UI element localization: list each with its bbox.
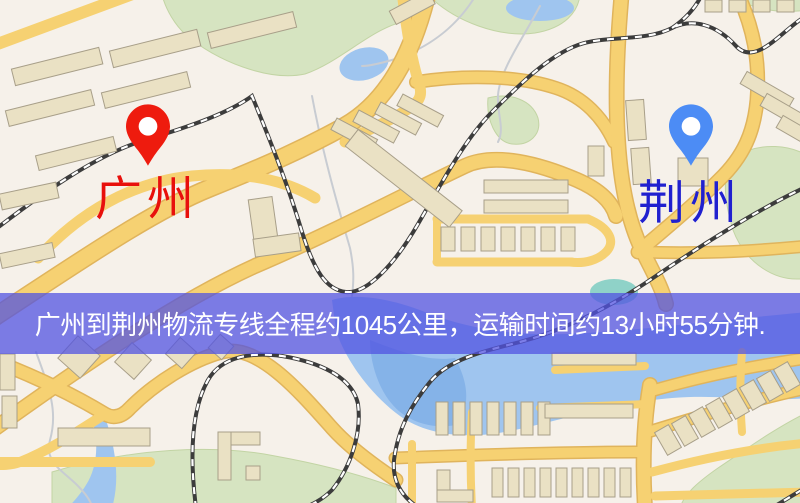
destination-pin-icon	[664, 103, 718, 167]
route-map: 广州 荆州 广州到荆州物流专线全程约1045公里，运输时间约13小时55分钟.	[0, 0, 800, 503]
route-info-text: 广州到荆州物流专线全程约1045公里，运输时间约13小时55分钟.	[35, 305, 765, 342]
destination-label: 荆州	[638, 180, 742, 227]
route-info-banner: 广州到荆州物流专线全程约1045公里，运输时间约13小时55分钟.	[0, 293, 800, 354]
map-background	[0, 0, 800, 503]
origin-pin-icon	[121, 103, 175, 167]
origin-label: 广州	[95, 176, 199, 223]
